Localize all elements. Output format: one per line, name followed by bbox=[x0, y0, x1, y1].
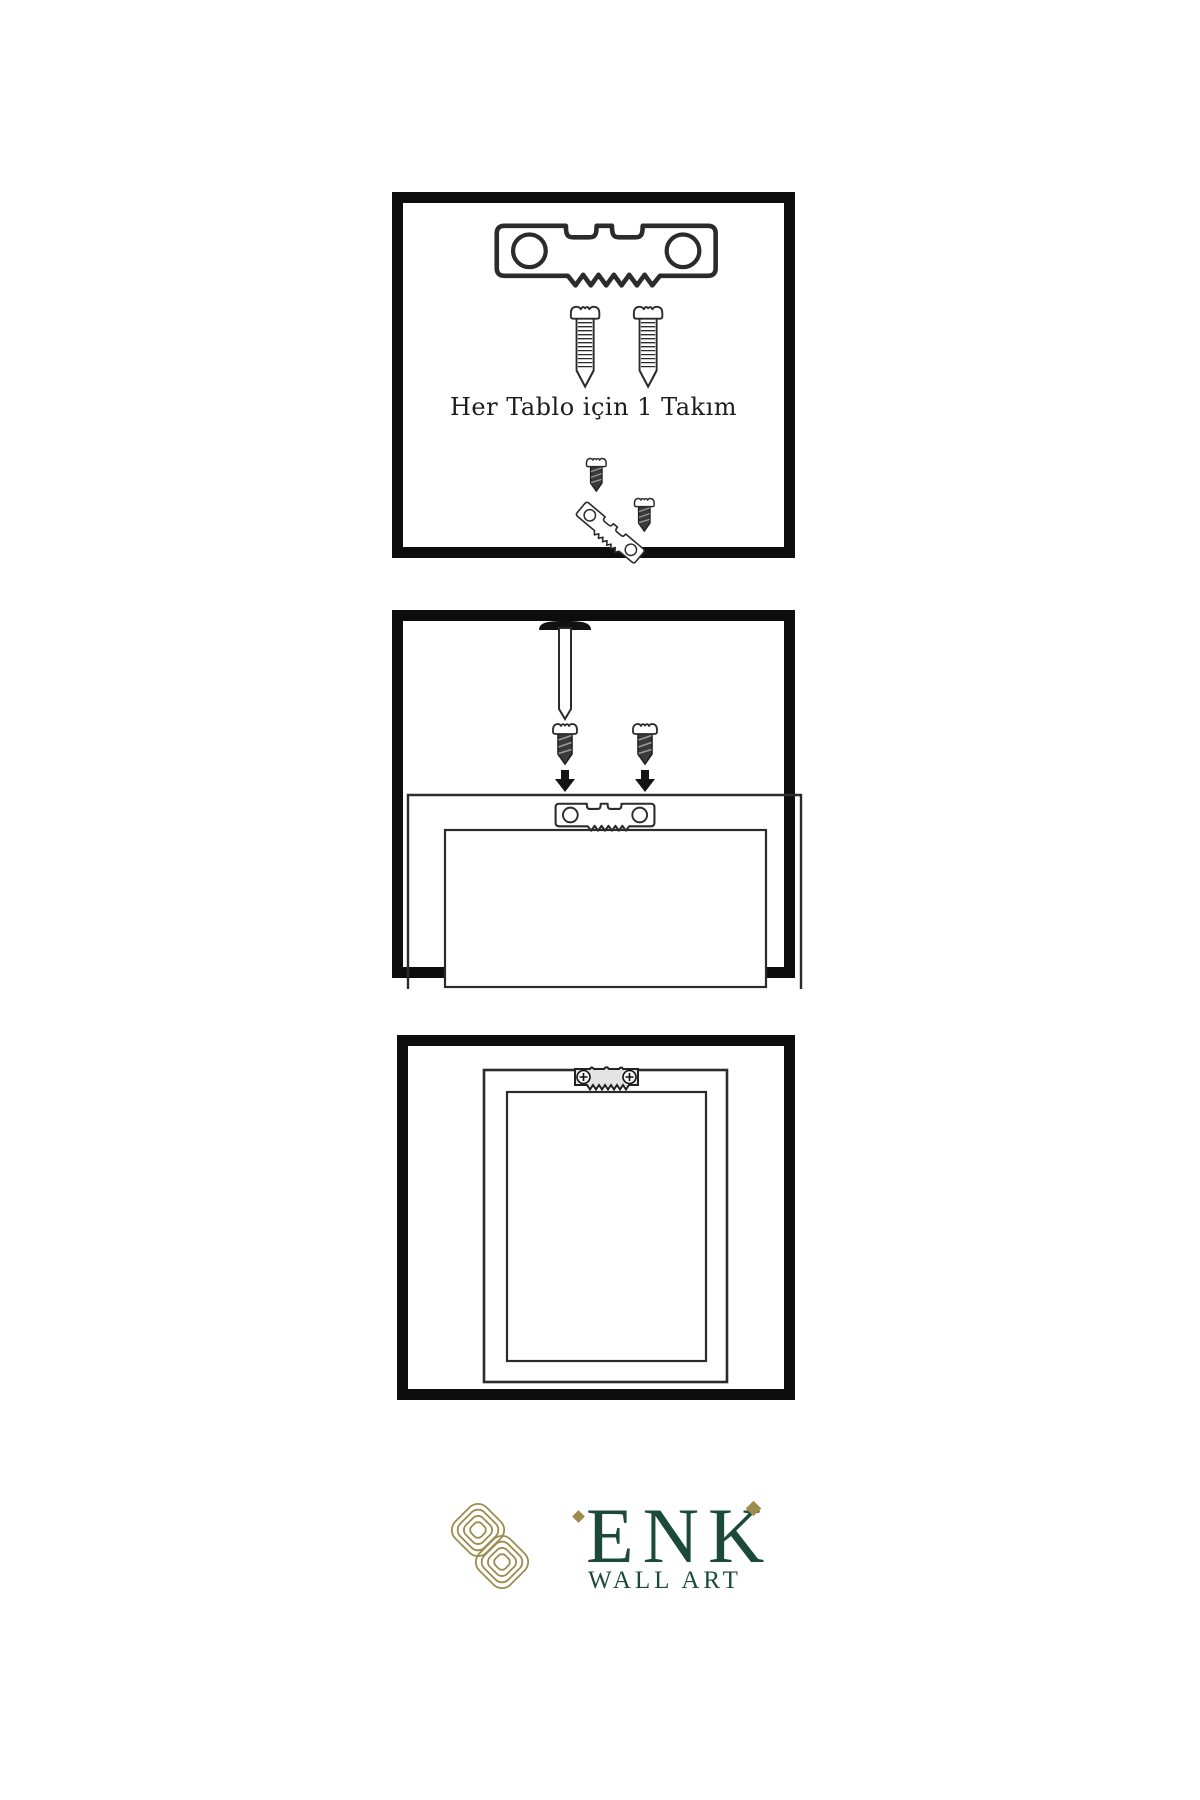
dark-screw-icon bbox=[586, 458, 606, 491]
kit-caption: Her Tablo için 1 Takım bbox=[403, 393, 784, 421]
step2-illustration bbox=[403, 621, 806, 989]
step3-illustration bbox=[408, 1046, 806, 1411]
tilted-sawtooth-hanger-icon bbox=[573, 501, 645, 566]
instruction-sheet: Her Tablo için 1 Takım bbox=[0, 0, 1200, 1800]
sawtooth-hanger-icon bbox=[497, 226, 716, 286]
down-arrow-icon bbox=[635, 770, 655, 792]
brand-diamond-icon bbox=[572, 1510, 585, 1523]
sawtooth-hanger-icon bbox=[556, 804, 655, 831]
frame-front-icon bbox=[484, 1070, 727, 1382]
step2-mounting-panel bbox=[392, 610, 795, 978]
step3-hang-panel bbox=[397, 1035, 795, 1400]
brand-subtitle: WALL ART bbox=[588, 1567, 742, 1595]
step1-hardware-kit-panel: Her Tablo için 1 Takım bbox=[392, 192, 795, 558]
screw-icon bbox=[571, 307, 600, 387]
screw-icon bbox=[634, 307, 663, 387]
dark-screw-icon bbox=[633, 724, 657, 764]
dark-screw-icon bbox=[634, 498, 654, 531]
step1-illustration bbox=[403, 203, 806, 569]
down-arrow-icon bbox=[555, 770, 575, 792]
dark-screw-icon bbox=[553, 724, 577, 764]
wall-nail-icon bbox=[539, 621, 591, 719]
interlocked-knot-icon bbox=[444, 1492, 536, 1602]
